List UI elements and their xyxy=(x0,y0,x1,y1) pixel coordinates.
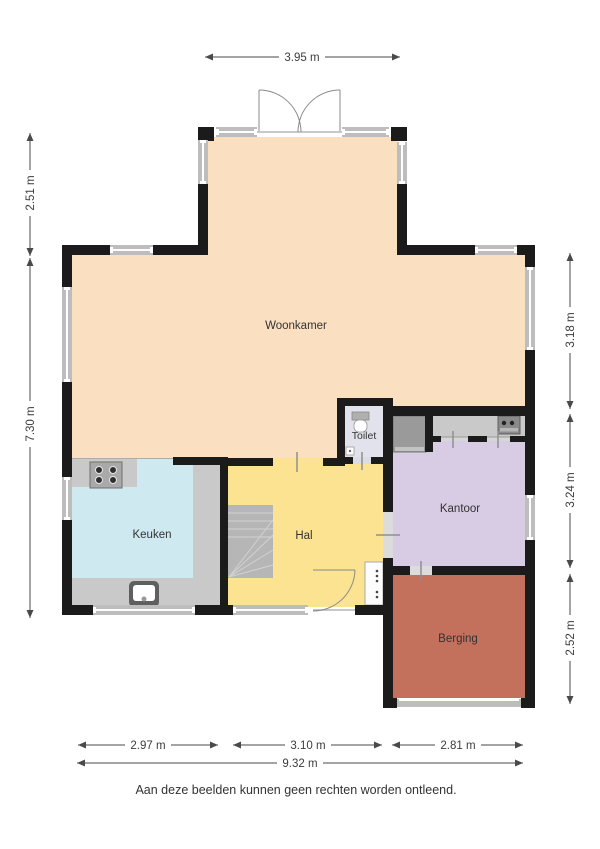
svg-text:3.10 m: 3.10 m xyxy=(290,740,325,752)
stove-icon xyxy=(90,462,122,488)
window-main-top-left xyxy=(110,245,153,255)
window-right-kantoor xyxy=(525,495,535,540)
dimension-bottom-berging: 2.81 m xyxy=(392,738,523,752)
berging-wide-door xyxy=(397,699,521,707)
dimension-top-width: 3.95 m xyxy=(205,50,400,64)
window-main-top-right xyxy=(475,245,517,255)
window-right-woonkamer xyxy=(525,267,535,350)
svg-text:2.52 m: 2.52 m xyxy=(565,620,577,655)
dimension-left-upper: 2.51 m xyxy=(23,133,37,256)
dimension-left-lower: 7.30 m xyxy=(23,258,37,618)
hand-basin-icon xyxy=(346,447,354,455)
svg-text:3.24 m: 3.24 m xyxy=(565,472,577,507)
svg-text:3.95 m: 3.95 m xyxy=(284,52,319,64)
floor-plan-page: Woonkamer Keuken Hal Toilet Kantoor Berg… xyxy=(0,0,600,849)
label-berging: Berging xyxy=(438,633,478,645)
window-top-left-of-doors xyxy=(216,127,257,137)
svg-text:2.51 m: 2.51 m xyxy=(25,175,37,210)
window-keuken-bottom xyxy=(93,605,195,615)
svg-text:7.30 m: 7.30 m xyxy=(25,406,37,441)
hob-icon xyxy=(498,416,520,434)
dimension-right-middle: 3.24 m xyxy=(563,414,577,568)
label-hal: Hal xyxy=(295,530,312,542)
window-top-right-of-doors xyxy=(342,127,389,137)
window-hal-bottom xyxy=(233,605,308,615)
label-keuken: Keuken xyxy=(132,529,171,541)
label-woonkamer: Woonkamer xyxy=(265,320,327,332)
dimension-bottom-hal: 3.10 m xyxy=(233,738,382,752)
meter-cabinet-icon xyxy=(365,562,383,605)
counter-right xyxy=(193,458,220,607)
window-left-keuken xyxy=(62,477,72,520)
dimension-bottom-keuken: 2.97 m xyxy=(78,738,218,752)
dimension-right-lower: 2.52 m xyxy=(563,574,577,704)
disclaimer-text: Aan deze beelden kunnen geen rechten wor… xyxy=(135,783,456,797)
window-upper-left-wall xyxy=(198,140,208,184)
svg-text:3.18 m: 3.18 m xyxy=(565,312,577,347)
utility-appliance-icon xyxy=(393,416,426,452)
french-doors xyxy=(259,90,340,132)
sink-icon xyxy=(129,581,159,607)
toilet-fixture-icon xyxy=(352,412,369,432)
stairs xyxy=(228,505,273,578)
dimension-bottom-total: 9.32 m xyxy=(77,756,523,770)
room-woonkamer-upper xyxy=(208,137,397,255)
window-upper-right-wall xyxy=(397,142,407,184)
svg-text:2.81 m: 2.81 m xyxy=(440,740,475,752)
floor-plan: Woonkamer Keuken Hal Toilet Kantoor Berg… xyxy=(0,0,600,849)
label-toilet: Toilet xyxy=(352,430,377,442)
svg-text:2.97 m: 2.97 m xyxy=(130,740,165,752)
svg-text:9.32 m: 9.32 m xyxy=(282,758,317,770)
dimension-right-upper: 3.18 m xyxy=(563,253,577,409)
label-kantoor: Kantoor xyxy=(440,503,480,515)
window-left-woonkamer xyxy=(62,287,72,382)
